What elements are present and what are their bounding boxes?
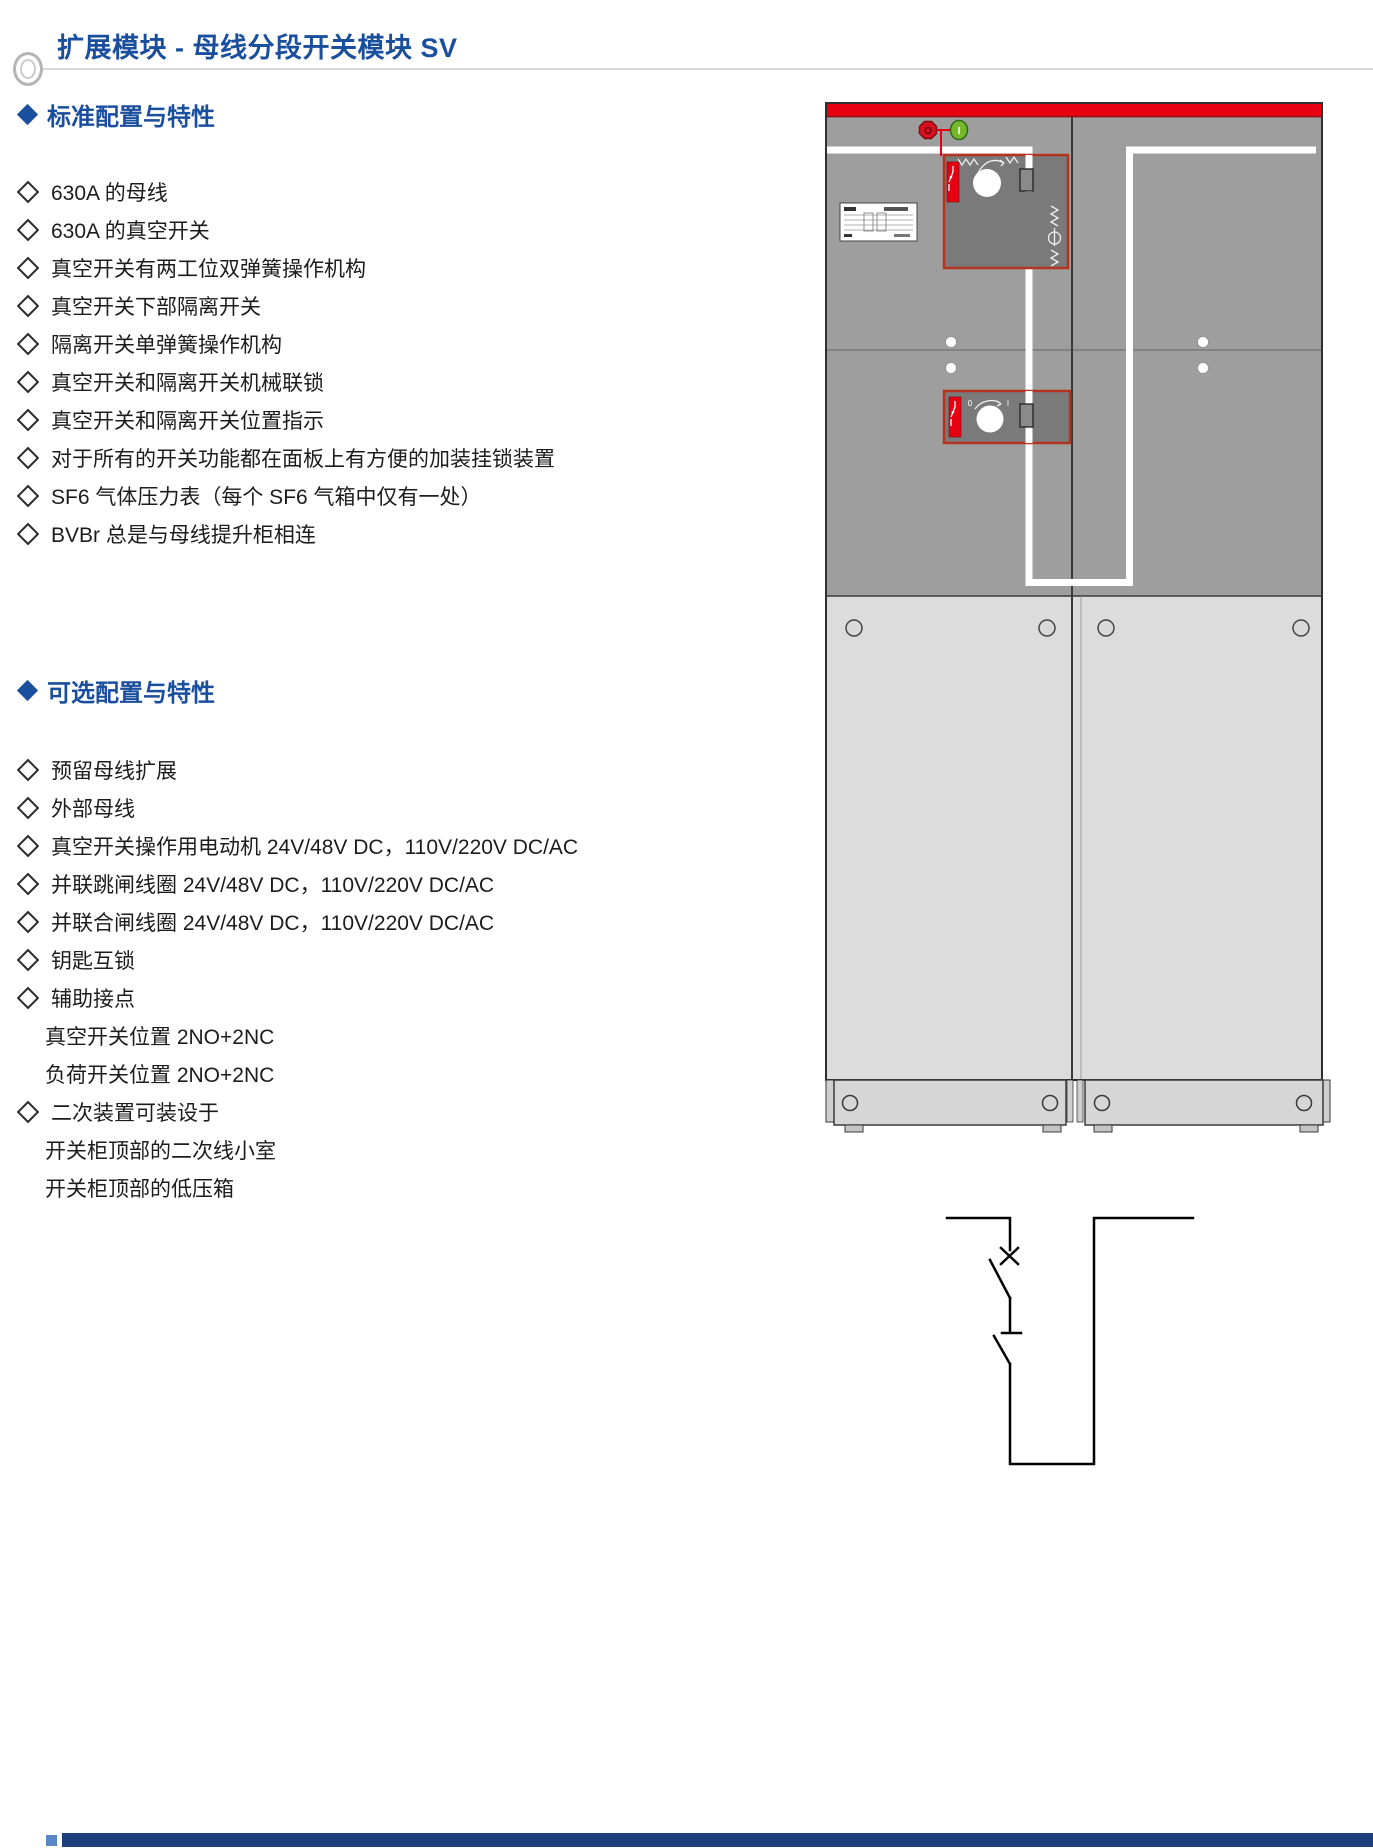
list-item-sub: 开关柜顶部的低压箱	[0, 1169, 578, 1207]
section-heading-optional: 可选配置与特性	[18, 673, 215, 708]
list-item-text: 预留母线扩展	[51, 755, 177, 785]
list-item: BVBr 总是与母线提升柜相连	[0, 515, 555, 553]
standard-feature-list: 630A 的母线 630A 的真空开关 真空开关有两工位双弹簧操作机构 真空开关…	[0, 173, 555, 553]
switch-symbol-dot	[950, 176, 953, 179]
list-item: 并联跳闸线圈 24V/48V DC，110V/220V DC/AC	[0, 865, 578, 903]
plinth-side-tab	[1323, 1080, 1330, 1122]
stop-button-label: O	[924, 126, 932, 137]
list-item-text: 二次装置可装设于	[51, 1097, 219, 1127]
list-item: 并联合闸线圈 24V/48V DC，110V/220V DC/AC	[0, 903, 578, 941]
list-item: 对于所有的开关功能都在面板上有方便的加装挂锁装置	[0, 439, 555, 477]
plinth-right	[1085, 1080, 1323, 1125]
breaker-blade	[990, 1260, 1010, 1298]
diamond-bullet-icon	[17, 835, 40, 858]
indicator-dot	[1198, 337, 1209, 348]
diamond-bullet-icon	[17, 295, 40, 318]
list-item-text: 630A 的母线	[51, 177, 168, 207]
cabinet-foot	[1094, 1125, 1112, 1132]
list-item: 真空开关下部隔离开关	[0, 287, 555, 325]
footer-accent-square	[46, 1835, 57, 1846]
list-item-sub: 真空开关位置 2NO+2NC	[0, 1017, 578, 1055]
list-item: 二次装置可装设于	[0, 1093, 578, 1131]
cabinet-upper-body	[826, 117, 1322, 596]
cabinet-door-section	[826, 596, 1322, 1080]
list-item: 预留母线扩展	[0, 751, 578, 789]
list-item: 真空开关和隔离开关位置指示	[0, 401, 555, 439]
list-item-text: BVBr 总是与母线提升柜相连	[51, 519, 316, 549]
vcb-operating-knob[interactable]	[973, 169, 1001, 197]
isolator-mechanism-panel: 0 I	[944, 391, 1070, 443]
screw-hole	[846, 620, 862, 636]
start-button-label: I	[958, 126, 961, 137]
list-item-text: 并联跳闸线圈 24V/48V DC，110V/220V DC/AC	[51, 869, 494, 899]
diamond-bullet-icon	[17, 409, 40, 432]
list-item-sub: 开关柜顶部的二次线小室	[0, 1131, 578, 1169]
list-item-text: 真空开关操作用电动机 24V/48V DC，110V/220V DC/AC	[51, 831, 578, 861]
list-item-text: 真空开关和隔离开关位置指示	[51, 405, 324, 435]
cabinet-foot	[1043, 1125, 1061, 1132]
list-item: SF6 气体压力表（每个 SF6 气箱中仅有一处）	[0, 477, 555, 515]
diamond-bullet-icon	[17, 797, 40, 820]
indicator-dot	[1198, 363, 1209, 374]
diamond-bullet-icon	[17, 523, 40, 546]
section-heading-text: 可选配置与特性	[47, 673, 215, 708]
binder-ring-icon	[13, 52, 43, 86]
list-item-text: 真空开关有两工位双弹簧操作机构	[51, 253, 366, 283]
diamond-bullet-icon	[17, 485, 40, 508]
diamond-bullet-icon	[17, 987, 40, 1010]
diamond-bullet-icon	[17, 333, 40, 356]
list-item: 辅助接点	[0, 979, 578, 1017]
plinth-left	[834, 1080, 1066, 1125]
screw-hole	[1039, 620, 1055, 636]
plinth-side-tab	[826, 1080, 834, 1122]
list-item-text: 辅助接点	[51, 983, 135, 1013]
list-item-text: 负荷开关位置 2NO+2NC	[45, 1059, 274, 1089]
page: 扩展模块 - 母线分段开关模块 SV 标准配置与特性 630A 的母线 630A…	[0, 0, 1373, 1848]
indicator-dot	[946, 363, 957, 374]
list-item: 钥匙互锁	[0, 941, 578, 979]
binder-ring-inner	[20, 59, 36, 79]
plinth-center-tab	[1067, 1080, 1073, 1122]
list-item-text: 并联合闸线圈 24V/48V DC，110V/220V DC/AC	[51, 907, 494, 937]
dial-max-label: I	[1007, 399, 1009, 408]
cabinet-foot	[1300, 1125, 1318, 1132]
list-item-text: 真空开关和隔离开关机械联锁	[51, 367, 324, 397]
single-line-diagram	[935, 1205, 1205, 1480]
isolator-operating-knob[interactable]	[977, 406, 1004, 433]
cabinet-foot	[845, 1125, 863, 1132]
diamond-bullet-icon	[17, 371, 40, 394]
list-item-sub: 负荷开关位置 2NO+2NC	[0, 1055, 578, 1093]
diamond-bullet-icon	[17, 1101, 40, 1124]
list-item: 真空开关和隔离开关机械联锁	[0, 363, 555, 401]
list-item-text: 真空开关下部隔离开关	[51, 291, 261, 321]
section-heading-standard: 标准配置与特性	[18, 97, 215, 132]
diamond-bullet-icon	[17, 219, 40, 242]
footer-bar	[62, 1833, 1373, 1847]
left-busbar-line	[947, 1218, 1010, 1250]
list-item: 630A 的真空开关	[0, 211, 555, 249]
screw-hole	[1293, 620, 1309, 636]
list-item-text: 630A 的真空开关	[51, 215, 210, 245]
diamond-bullet-icon	[17, 447, 40, 470]
list-item-text: 隔离开关单弹簧操作机构	[51, 329, 282, 359]
screw-hole	[1098, 620, 1114, 636]
list-item: 外部母线	[0, 789, 578, 827]
cabinet-illustration: O I	[820, 95, 1340, 1140]
diamond-bullet-icon	[17, 759, 40, 782]
list-item: 真空开关有两工位双弹簧操作机构	[0, 249, 555, 287]
list-item-text: 真空开关位置 2NO+2NC	[45, 1021, 274, 1051]
disconnector-blade	[994, 1336, 1010, 1364]
list-item: 630A 的母线	[0, 173, 555, 211]
diamond-bullet-icon	[17, 873, 40, 896]
section-heading-text: 标准配置与特性	[47, 97, 215, 132]
header-divider-line	[30, 68, 1373, 70]
list-item-text: 开关柜顶部的二次线小室	[45, 1135, 276, 1165]
right-busbar-line	[1010, 1218, 1193, 1464]
list-item-text: 对于所有的开关功能都在面板上有方便的加装挂锁装置	[51, 443, 555, 473]
section-diamond-icon	[17, 104, 38, 125]
red-top-bar	[826, 103, 1322, 117]
switch-symbol-dot	[952, 411, 955, 414]
dial-min-label: 0	[968, 399, 973, 408]
page-title: 扩展模块 - 母线分段开关模块 SV	[57, 26, 458, 65]
indicator-dot	[946, 337, 957, 348]
list-item-text: SF6 气体压力表（每个 SF6 气箱中仅有一处）	[51, 481, 482, 511]
vcb-mechanism-panel	[944, 155, 1068, 268]
section-diamond-icon	[17, 680, 38, 701]
diamond-bullet-icon	[17, 181, 40, 204]
handle-slot	[1020, 169, 1033, 191]
rating-plate	[840, 203, 917, 241]
list-item: 真空开关操作用电动机 24V/48V DC，110V/220V DC/AC	[0, 827, 578, 865]
diamond-bullet-icon	[17, 949, 40, 972]
optional-feature-list: 预留母线扩展 外部母线 真空开关操作用电动机 24V/48V DC，110V/2…	[0, 751, 578, 1207]
handle-slot	[1020, 404, 1033, 427]
list-item-text: 外部母线	[51, 793, 135, 823]
diamond-bullet-icon	[17, 911, 40, 934]
list-item: 隔离开关单弹簧操作机构	[0, 325, 555, 363]
list-item-text: 开关柜顶部的低压箱	[45, 1173, 234, 1203]
diamond-bullet-icon	[17, 257, 40, 280]
plinth-center-tab	[1077, 1080, 1083, 1122]
list-item-text: 钥匙互锁	[51, 945, 135, 975]
